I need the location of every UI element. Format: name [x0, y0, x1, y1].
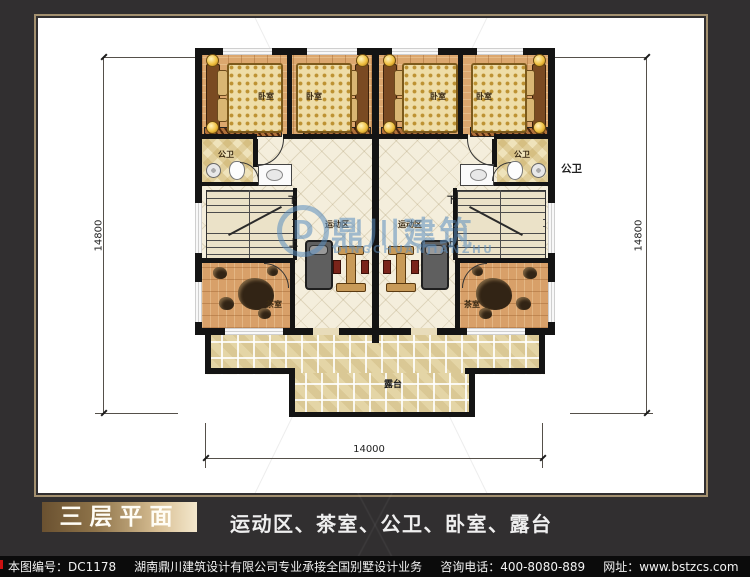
wall-corridor [195, 134, 257, 139]
footer-phone: 咨询电话：400-8080-889 [440, 558, 585, 575]
terrace-wall [289, 368, 295, 417]
bedside-lamp [533, 54, 546, 67]
tea-stool [213, 267, 227, 279]
terrace-wall [469, 368, 475, 417]
floor-title-badge: 三层平面 [42, 502, 197, 532]
sink-basin [266, 169, 283, 181]
label-bathroom-outside: 公卫 [561, 161, 582, 176]
bedside-lamp [356, 121, 369, 134]
dim-text-bottom: 14000 [349, 444, 389, 455]
dim-line-right [646, 57, 647, 413]
weight-pad [411, 260, 419, 274]
weight-pad [383, 260, 391, 274]
terrace-wall [205, 368, 295, 374]
wall-tea-left-side [290, 258, 295, 335]
weight-pad [361, 260, 369, 274]
wall-corridor [494, 134, 555, 139]
footer-drawing-no: 本图编号：DC1178 [8, 558, 116, 575]
footer-red-mark [0, 560, 3, 569]
dim-witness-bottom-left [205, 423, 206, 468]
window [548, 282, 555, 322]
wall-bath-right-bottom [492, 182, 555, 186]
dim-ext-right [570, 413, 653, 414]
tea-stool [219, 297, 234, 310]
bed-quilt [296, 63, 352, 133]
weight-machine [396, 253, 406, 285]
label-bedroom: 卧室 [476, 91, 492, 102]
wall-tea-right-top [455, 258, 555, 263]
weight-machine [346, 253, 356, 285]
label-tea-room: 茶室 [266, 299, 282, 310]
label-stair-down: 下 [447, 193, 456, 206]
window [548, 203, 555, 253]
label-bathroom: 公卫 [218, 149, 234, 160]
wall-bedroom-divider-left [287, 48, 292, 138]
floor-drain [531, 163, 546, 178]
bedside-lamp [383, 54, 396, 67]
terrace-wall [539, 335, 545, 374]
window [392, 48, 438, 55]
wall-corridor [283, 134, 372, 139]
floor-subtitle: 运动区、茶室、公卫、卧室、露台 [230, 508, 553, 537]
window [477, 48, 523, 55]
bedside-lamp [206, 121, 219, 134]
sink-basin [470, 169, 487, 181]
label-tea-room: 茶室 [464, 299, 480, 310]
window [195, 203, 202, 253]
floor-drain [206, 163, 221, 178]
wall-bedroom-divider-right [458, 48, 463, 138]
window [467, 328, 525, 335]
label-stair-down: 下 [288, 193, 297, 206]
terrace-lower-floor [289, 373, 475, 417]
label-terrace: 露台 [384, 377, 402, 390]
terrace-door-opening [313, 328, 339, 335]
bedside-lamp [206, 54, 219, 67]
poster-stage: 14800 14800 14000 公卫 [0, 0, 750, 577]
label-bedroom: 卧室 [258, 91, 274, 102]
bedside-lamp [356, 54, 369, 67]
window [307, 48, 357, 55]
footer-company: 湖南鼎川建筑设计有限公司专业承接全国别墅设计业务 [134, 558, 422, 575]
weight-machine [336, 283, 366, 292]
footer-website: 网址：www.bstzcs.com [603, 558, 738, 575]
wall-tea-left-top [195, 258, 295, 263]
terrace-wall [465, 368, 545, 374]
label-bathroom: 公卫 [514, 149, 530, 160]
label-bedroom: 卧室 [306, 91, 322, 102]
wall-tea-right-side [455, 258, 460, 335]
bedside-lamp [383, 121, 396, 134]
bedside-lamp [533, 121, 546, 134]
weight-machine [386, 283, 416, 292]
dim-line-bottom [205, 458, 542, 459]
bed-quilt [227, 63, 283, 133]
window [223, 48, 272, 55]
weight-pad [333, 260, 341, 274]
terrace-door-opening [411, 328, 437, 335]
tea-stool [479, 308, 492, 319]
footer-bar: 本图编号：DC1178 湖南鼎川建筑设计有限公司专业承接全国别墅设计业务 咨询电… [0, 556, 750, 577]
terrace-wall [289, 412, 475, 417]
dim-witness-bottom-right [542, 423, 543, 468]
window [225, 328, 283, 335]
watermark-logo-icon: D [277, 205, 329, 257]
tea-stool [523, 267, 537, 279]
dim-ext-left [95, 413, 178, 414]
terrace-wall-stub [372, 335, 379, 343]
wall-corridor [379, 134, 468, 139]
wall-bath-left-bottom [195, 182, 258, 186]
wall-party [372, 48, 379, 335]
dim-text-right: 14800 [634, 222, 645, 252]
watermark-name-en: DINGCHUANJIANZHU [333, 244, 494, 256]
window [195, 282, 202, 322]
tea-stool [516, 297, 531, 310]
dim-text-left: 14800 [94, 222, 105, 252]
label-bedroom: 卧室 [430, 91, 446, 102]
